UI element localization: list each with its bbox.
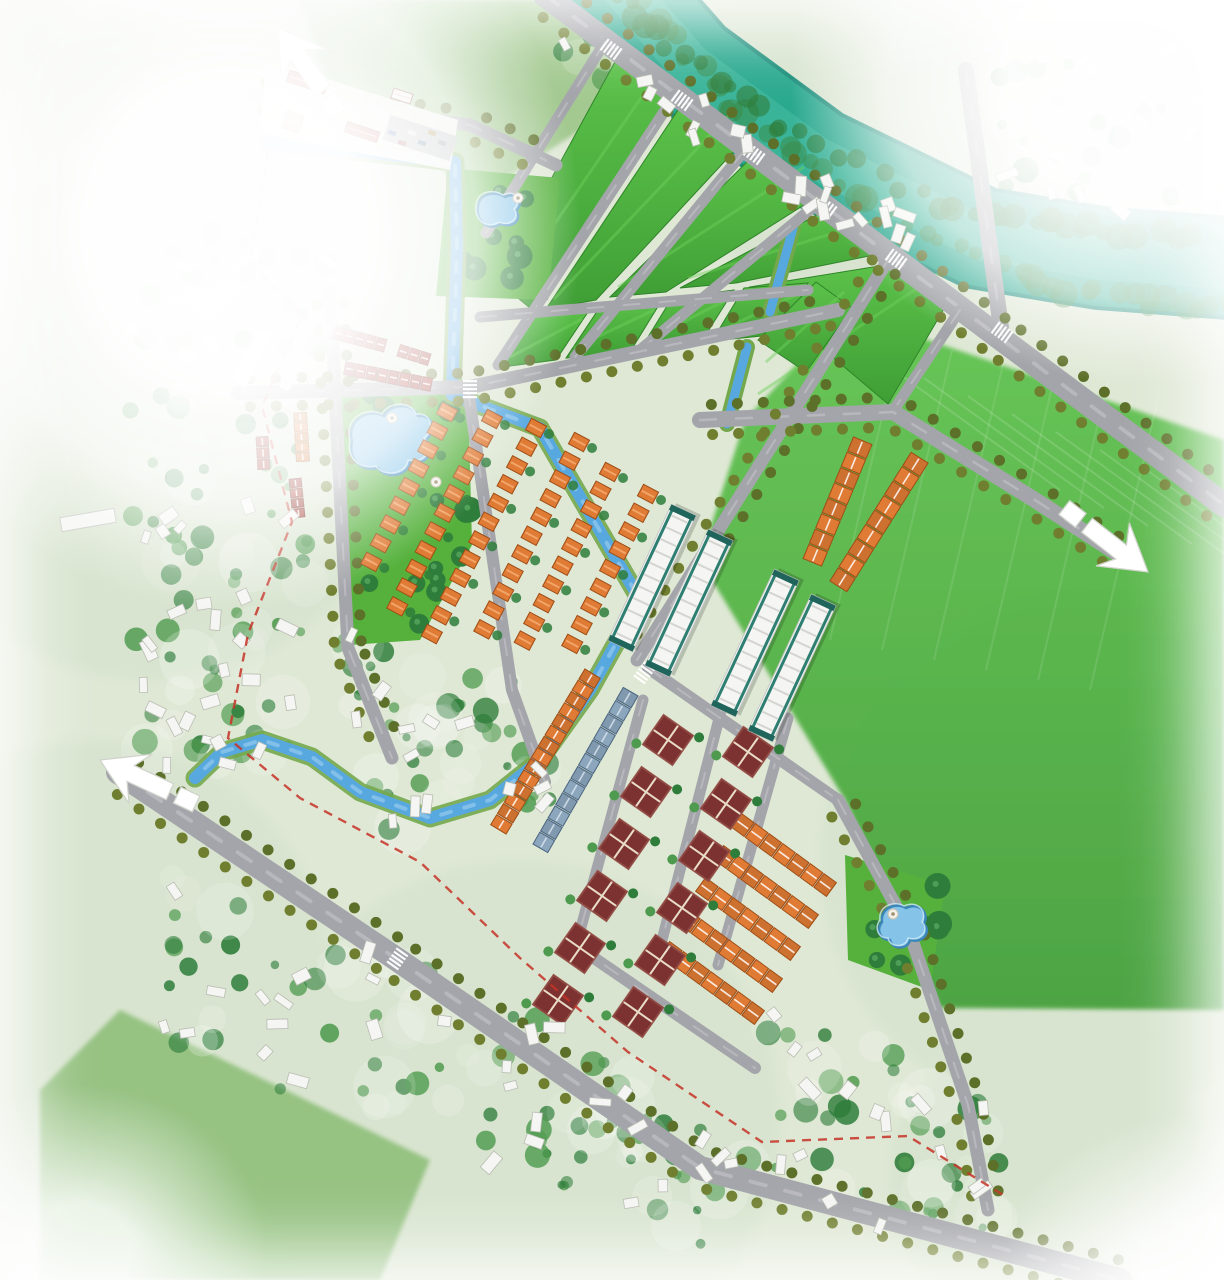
existing-house [410,796,420,817]
existing-house [163,757,171,773]
existing-house [1037,53,1052,64]
existing-house [179,1027,195,1038]
existing-house [1088,62,1099,78]
masterplan-rendering [0,0,1224,1280]
existing-house [139,677,147,692]
existing-house [978,1100,989,1115]
existing-house [196,597,212,610]
existing-house [775,1155,786,1175]
existing-house [589,1097,611,1106]
existing-house [421,794,433,814]
existing-house [658,1179,668,1192]
existing-house [543,1022,565,1033]
existing-house [284,695,296,711]
existing-house [437,1015,451,1027]
existing-house [730,124,746,139]
existing-house [210,609,221,630]
existing-house [242,674,260,686]
existing-house [388,814,397,829]
masterplan-svg [0,0,1224,1280]
left-townhouse-column [294,412,310,461]
existing-house [351,711,362,728]
existing-house [267,1019,288,1029]
existing-house [623,1197,639,1209]
existing-house [724,1158,738,1169]
existing-house [531,1112,543,1132]
existing-house [502,1060,512,1073]
existing-house [795,176,807,197]
left-townhouse-column [256,436,270,469]
